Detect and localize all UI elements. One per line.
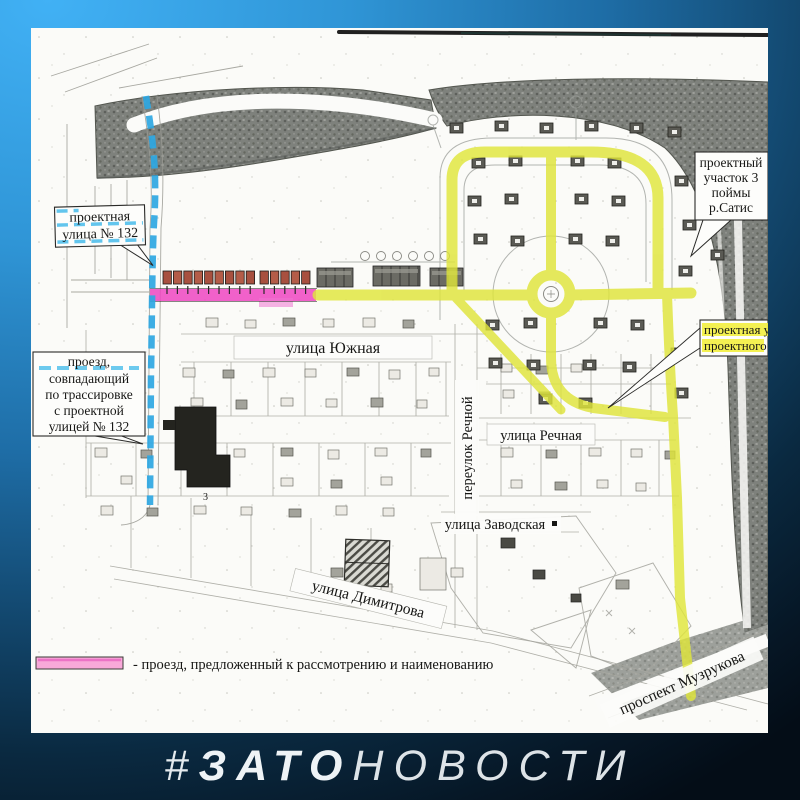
svg-text:по трассировке: по трассировке [45, 387, 132, 402]
news-post-background: 3 [0, 0, 800, 800]
svg-text:улицей № 132: улицей № 132 [49, 419, 129, 434]
callout-passage-matching: проезд, совпадающий по трассировке с про… [33, 352, 145, 444]
scanned-plan-image: 3 [31, 28, 768, 733]
svg-text:участок 3: участок 3 [704, 170, 759, 185]
street-label-zavodskaya: улица Заводская [445, 517, 546, 533]
svg-text:поймы: поймы [712, 185, 751, 200]
svg-text:совпадающий: совпадающий [49, 371, 129, 386]
svg-text:с проектной: с проектной [54, 403, 124, 418]
watermark-zato: ЗАТО [199, 742, 353, 791]
legend-label: - проезд, предложенный к рассмотрению и … [133, 657, 493, 673]
gray-rowhouse-blocks [317, 266, 463, 287]
svg-text:проектный: проектный [700, 155, 763, 170]
city-plan-drawing: 3 [31, 28, 768, 733]
street-label-yuzhnaya: улица Южная [286, 340, 381, 357]
street-label-pereulok-rechnoy: переулок Речной [460, 396, 476, 500]
street-label-rechnaya: улица Речная [500, 428, 582, 444]
building-number-label: 3 [203, 492, 208, 503]
svg-text:проектного: проектного [704, 338, 767, 353]
watermark-hash: # [164, 742, 198, 791]
svg-text:улица № 132: улица № 132 [62, 226, 138, 243]
svg-text:р.Сатис: р.Сатис [709, 200, 753, 215]
pink-road-stub [259, 298, 293, 307]
svg-text:проектная: проектная [69, 209, 131, 226]
watermark: #ЗАТОНОВОСТИ [0, 733, 800, 800]
svg-text:проектная у: проектная у [704, 322, 768, 337]
svg-text:проезд,: проезд, [68, 354, 110, 369]
hatched-building [344, 539, 390, 587]
watermark-novosti: НОВОСТИ [352, 742, 635, 791]
